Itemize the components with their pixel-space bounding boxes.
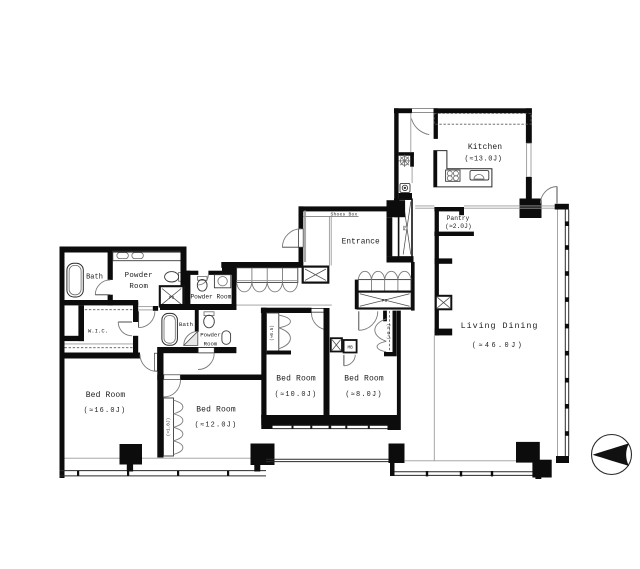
- svg-text:W.I.C.: W.I.C.: [88, 328, 108, 335]
- svg-text:MB: MB: [347, 346, 353, 351]
- svg-text:Bed Room: Bed Room: [344, 375, 384, 384]
- svg-text:(≈0.5): (≈0.5): [387, 324, 392, 340]
- svg-text:(≈12.0J): (≈12.0J): [195, 422, 238, 430]
- svg-text:Room: Room: [129, 283, 148, 291]
- svg-text:Entrance: Entrance: [342, 238, 380, 246]
- svg-text:(≈0.5): (≈0.5): [270, 325, 275, 341]
- svg-text:Living Dining: Living Dining: [461, 321, 539, 331]
- svg-text:Bath: Bath: [179, 321, 193, 328]
- svg-text:Kitchen: Kitchen: [468, 143, 502, 152]
- svg-text:Bed Room: Bed Room: [196, 406, 236, 415]
- svg-text:PS: PS: [382, 300, 388, 304]
- svg-text:(≈8.0J): (≈8.0J): [345, 391, 382, 399]
- svg-text:Bed Room: Bed Room: [276, 375, 316, 384]
- svg-text:Pantry: Pantry: [447, 215, 470, 222]
- svg-text:(≈2.0J): (≈2.0J): [445, 223, 471, 230]
- svg-text:PS: PS: [404, 225, 408, 231]
- svg-text:Room: Room: [204, 340, 218, 347]
- svg-text:Bath: Bath: [86, 274, 103, 282]
- svg-text:(≈1.0J): (≈1.0J): [167, 418, 172, 436]
- svg-text:(≈10.0J): (≈10.0J): [275, 391, 318, 399]
- svg-text:PS: PS: [169, 296, 175, 301]
- svg-text:Powder: Powder: [125, 272, 153, 280]
- svg-text:Powder: Powder: [200, 332, 220, 339]
- svg-text:(≈13.0J): (≈13.0J): [465, 155, 503, 163]
- svg-text:(≈46.0J): (≈46.0J): [472, 342, 524, 350]
- svg-text:Bed Room: Bed Room: [86, 391, 126, 400]
- svg-text:(≈16.0J): (≈16.0J): [84, 407, 127, 415]
- svg-text:Powder Room: Powder Room: [190, 293, 231, 300]
